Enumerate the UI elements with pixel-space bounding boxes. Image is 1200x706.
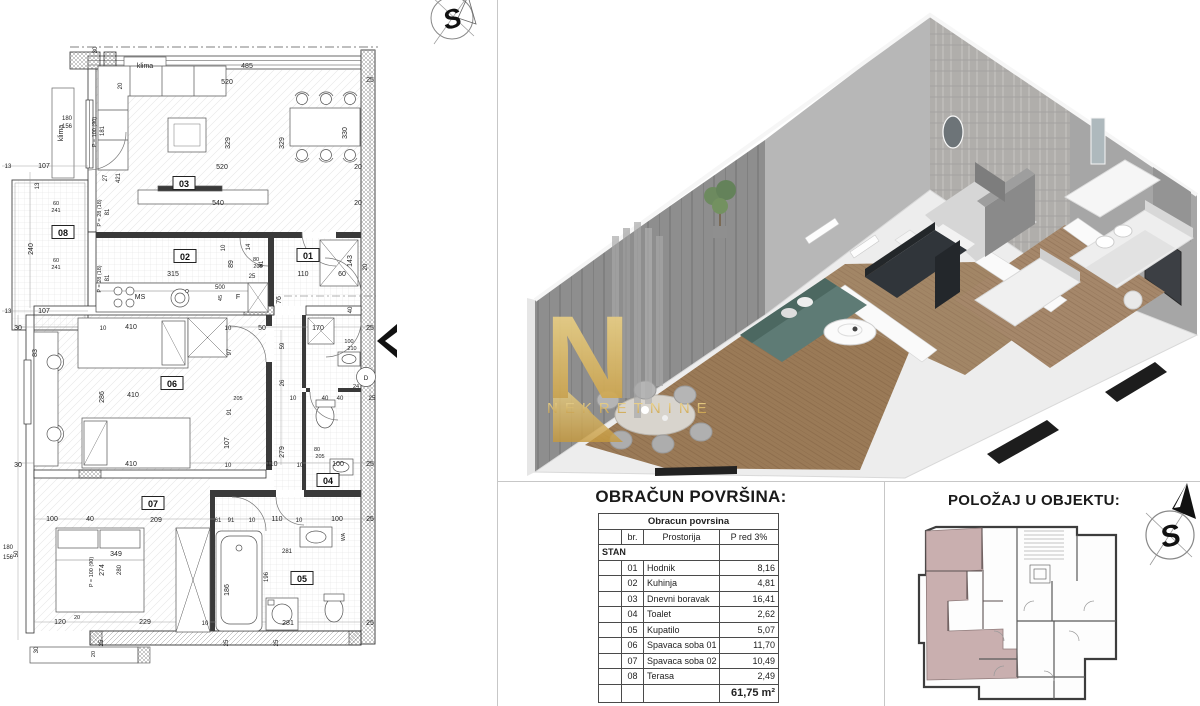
dimension-label: 180: [3, 545, 14, 551]
dimension-label: 286: [99, 391, 106, 403]
dimension-label: 107: [38, 163, 50, 170]
table-row: 01Hodnik8,16: [599, 560, 779, 576]
dimension-label: 13: [35, 182, 41, 189]
dimension-label: 20: [354, 164, 362, 171]
svg-text:03: 03: [179, 179, 189, 189]
dimension-label: 83: [32, 349, 39, 357]
dimension-label: 20: [354, 200, 362, 207]
table-total-row: 61,75 m²: [599, 684, 779, 702]
dimension-label: 14: [246, 243, 252, 250]
table-row: 03Dnevni boravak16,41: [599, 591, 779, 607]
building-outline: [919, 527, 1116, 699]
dimension-label: 40: [322, 396, 329, 402]
dimension-label: 45: [218, 295, 224, 301]
dimension-label: 520: [221, 79, 233, 86]
dimension-label: 25: [249, 274, 256, 280]
dimension-label: 240: [28, 243, 35, 255]
dimension-label: 10: [221, 244, 227, 251]
dimension-label: 241: [51, 208, 60, 214]
dimension-label: 25: [369, 396, 376, 402]
dimension-label: 25: [366, 461, 374, 468]
dimension-label: 100: [46, 516, 58, 523]
dimension-label: 30: [34, 646, 40, 653]
group-label: STAN: [599, 545, 720, 561]
dimension-label: 40: [348, 306, 354, 313]
dimension-label: 25: [274, 639, 280, 646]
entrance-arrow: [377, 324, 397, 358]
dimension-label: F: [236, 294, 240, 301]
dimension-label: klima: [137, 63, 153, 70]
dimension-label: 25: [366, 325, 374, 332]
dimension-label: 81: [259, 260, 265, 267]
dimension-label: 60: [53, 258, 59, 264]
dimension-label: 20: [118, 82, 124, 89]
room-number-06: 06: [161, 377, 183, 390]
dimension-label: P = 100 (90): [92, 117, 98, 147]
dimension-label: 10: [249, 518, 256, 524]
dimension-label: 410: [125, 461, 137, 468]
dimension-label: 50: [258, 325, 266, 332]
dimension-label: 25: [366, 77, 374, 84]
dimension-label: 241: [51, 265, 60, 271]
dimension-label: 10: [225, 463, 232, 469]
dimension-label: 30: [14, 325, 22, 332]
room-number-04: 04: [317, 474, 339, 487]
dimension-label: D: [364, 375, 369, 382]
dimension-label: 205: [315, 454, 324, 460]
listing-image: S klima485520302032932933025520205402027…: [0, 0, 1200, 706]
room-number-08: 08: [52, 226, 74, 239]
floorplan-2d: S klima485520302032932933025520205402027…: [0, 0, 497, 706]
dimension-label: 20: [74, 615, 80, 621]
table-row: 04Toalet2,62: [599, 607, 779, 623]
room-number-01: 01: [297, 249, 319, 262]
dimension-label: 280: [117, 564, 123, 575]
svg-text:07: 07: [148, 499, 158, 509]
table-row: 08Terasa2,49: [599, 669, 779, 685]
dimension-label: 25: [366, 620, 374, 627]
svg-text:05: 05: [297, 574, 307, 584]
dimension-label: 107: [224, 437, 231, 449]
dimension-label: 410: [125, 324, 137, 331]
dimension-label: 97: [227, 348, 233, 355]
dimension-label: 540: [212, 200, 224, 207]
dimension-label: 13: [5, 164, 12, 170]
dimension-label: 27: [103, 174, 109, 181]
total-area: 61,75 m²: [720, 684, 779, 702]
dimension-label: 110: [266, 461, 277, 468]
svg-text:06: 06: [167, 379, 177, 389]
dimension-label: 100: [331, 516, 343, 523]
dimension-label: 59: [280, 342, 286, 349]
table-title: Obracun povrsina: [599, 514, 779, 530]
compass-north-icon: S: [431, 0, 476, 44]
dimension-label: 196: [264, 571, 270, 582]
dimension-label: 349: [110, 551, 122, 558]
dimension-label: 279: [279, 446, 286, 458]
divider-vertical-main: [497, 0, 498, 706]
dimension-label: 81: [105, 208, 111, 215]
dimension-label: 315: [167, 271, 179, 278]
dimension-label: 170: [312, 325, 324, 332]
dimension-label: 110: [297, 271, 308, 278]
dimension-label: P = 28 (18): [97, 199, 103, 226]
dimension-label: 20: [91, 651, 97, 657]
dimension-label: 13: [5, 309, 12, 315]
dimension-label: 60: [53, 201, 59, 207]
render-3d: N NEKRETNINE: [505, 0, 1200, 480]
dimension-label: P = 100 (90): [89, 557, 95, 587]
dimension-label: 205: [233, 396, 242, 402]
dimension-label: 40: [86, 516, 94, 523]
svg-text:08: 08: [58, 228, 68, 238]
dimension-label: 186: [224, 584, 231, 596]
area-section-title: OBRAČUN POVRŠINA:: [497, 487, 885, 507]
dimension-label: 10: [100, 326, 107, 332]
svg-text:04: 04: [323, 476, 333, 486]
dimension-label: 180: [62, 116, 73, 122]
dimension-label: 520: [216, 164, 228, 171]
dimension-label: 421: [116, 172, 122, 183]
svg-text:02: 02: [180, 252, 190, 262]
dimension-label: klima: [58, 125, 65, 141]
dimension-label: 81: [105, 274, 111, 281]
dimension-label: 61: [215, 518, 222, 524]
dimension-label: 107: [38, 308, 50, 315]
dimension-label: 210: [347, 346, 356, 352]
dimension-label: 281: [282, 549, 293, 555]
room-number-05: 05: [291, 572, 313, 585]
svg-text:S: S: [1157, 518, 1184, 555]
table-row: 06Spavaca soba 0111,70: [599, 638, 779, 654]
dimension-label: 485: [241, 63, 253, 70]
dimension-label: 10: [290, 396, 297, 402]
dimension-label: 24: [353, 384, 359, 390]
dimension-label: 91: [228, 518, 235, 524]
dimension-label: 25: [366, 516, 374, 523]
dimension-label: 329: [225, 137, 232, 149]
dimension-label: 330: [342, 127, 349, 139]
dimension-label: 143: [347, 255, 354, 267]
dimension-label: WA: [341, 532, 347, 541]
dimension-label: 281: [282, 620, 294, 627]
table-header-row: br. Prostorija P red 3%: [599, 529, 779, 545]
dimension-label: 25: [99, 639, 105, 646]
dimension-label: 30: [14, 462, 22, 469]
dimension-label: 10: [296, 518, 303, 524]
dimension-label: 26: [280, 379, 286, 386]
dimension-label: 25: [224, 639, 230, 646]
building-minimap: S: [884, 481, 1200, 706]
table-row: 07Spavaca soba 0210,49: [599, 653, 779, 669]
table-group-row: STAN: [599, 545, 779, 561]
dimension-label: 110: [271, 516, 282, 523]
dimension-label: 80: [314, 447, 320, 453]
dimension-label: 30: [93, 46, 99, 53]
dimension-label: 229: [139, 619, 151, 626]
dimension-label: 209: [150, 517, 162, 524]
dimension-label: 60: [338, 271, 346, 278]
dimension-label: 120: [54, 619, 66, 626]
dimension-label: 100: [332, 461, 344, 468]
dimension-label: 20: [363, 263, 369, 270]
col-pred: P red 3%: [720, 529, 779, 545]
room-number-02: 02: [174, 250, 196, 263]
compass-south-icon: S: [1146, 483, 1196, 565]
dimension-label: 10: [225, 326, 232, 332]
room-number-07: 07: [142, 497, 164, 510]
dimension-label: 10: [297, 463, 304, 469]
dimension-label: 181: [100, 125, 106, 136]
dimension-label: 410: [127, 392, 139, 399]
dimension-label: 76: [276, 296, 283, 304]
dimension-label: 40: [337, 396, 344, 402]
dimension-label: 500: [215, 285, 226, 291]
dimension-label: 89: [228, 260, 235, 268]
dimension-label: 91: [227, 408, 233, 415]
watermark-text: NEKRETNINE: [547, 400, 714, 417]
table-row: 05Kupatilo5,07: [599, 622, 779, 638]
table-row: 02Kuhinja4,81: [599, 576, 779, 592]
col-prostorija: Prostorija: [644, 529, 720, 545]
dimension-label: 156: [3, 555, 14, 561]
room-number-03: 03: [173, 177, 195, 190]
dimension-label: 329: [279, 137, 286, 149]
col-br: br.: [622, 529, 644, 545]
dimension-label: 50: [14, 550, 20, 557]
dimension-label: 100: [344, 339, 353, 345]
dimension-label: 10: [202, 621, 209, 627]
dimension-label: 274: [99, 564, 106, 576]
dimension-label: MS: [135, 294, 146, 301]
area-table: Obracun povrsina br. Prostorija P red 3%…: [598, 513, 779, 703]
svg-text:01: 01: [303, 251, 313, 261]
dimension-label: P = 28 (18): [97, 265, 103, 292]
